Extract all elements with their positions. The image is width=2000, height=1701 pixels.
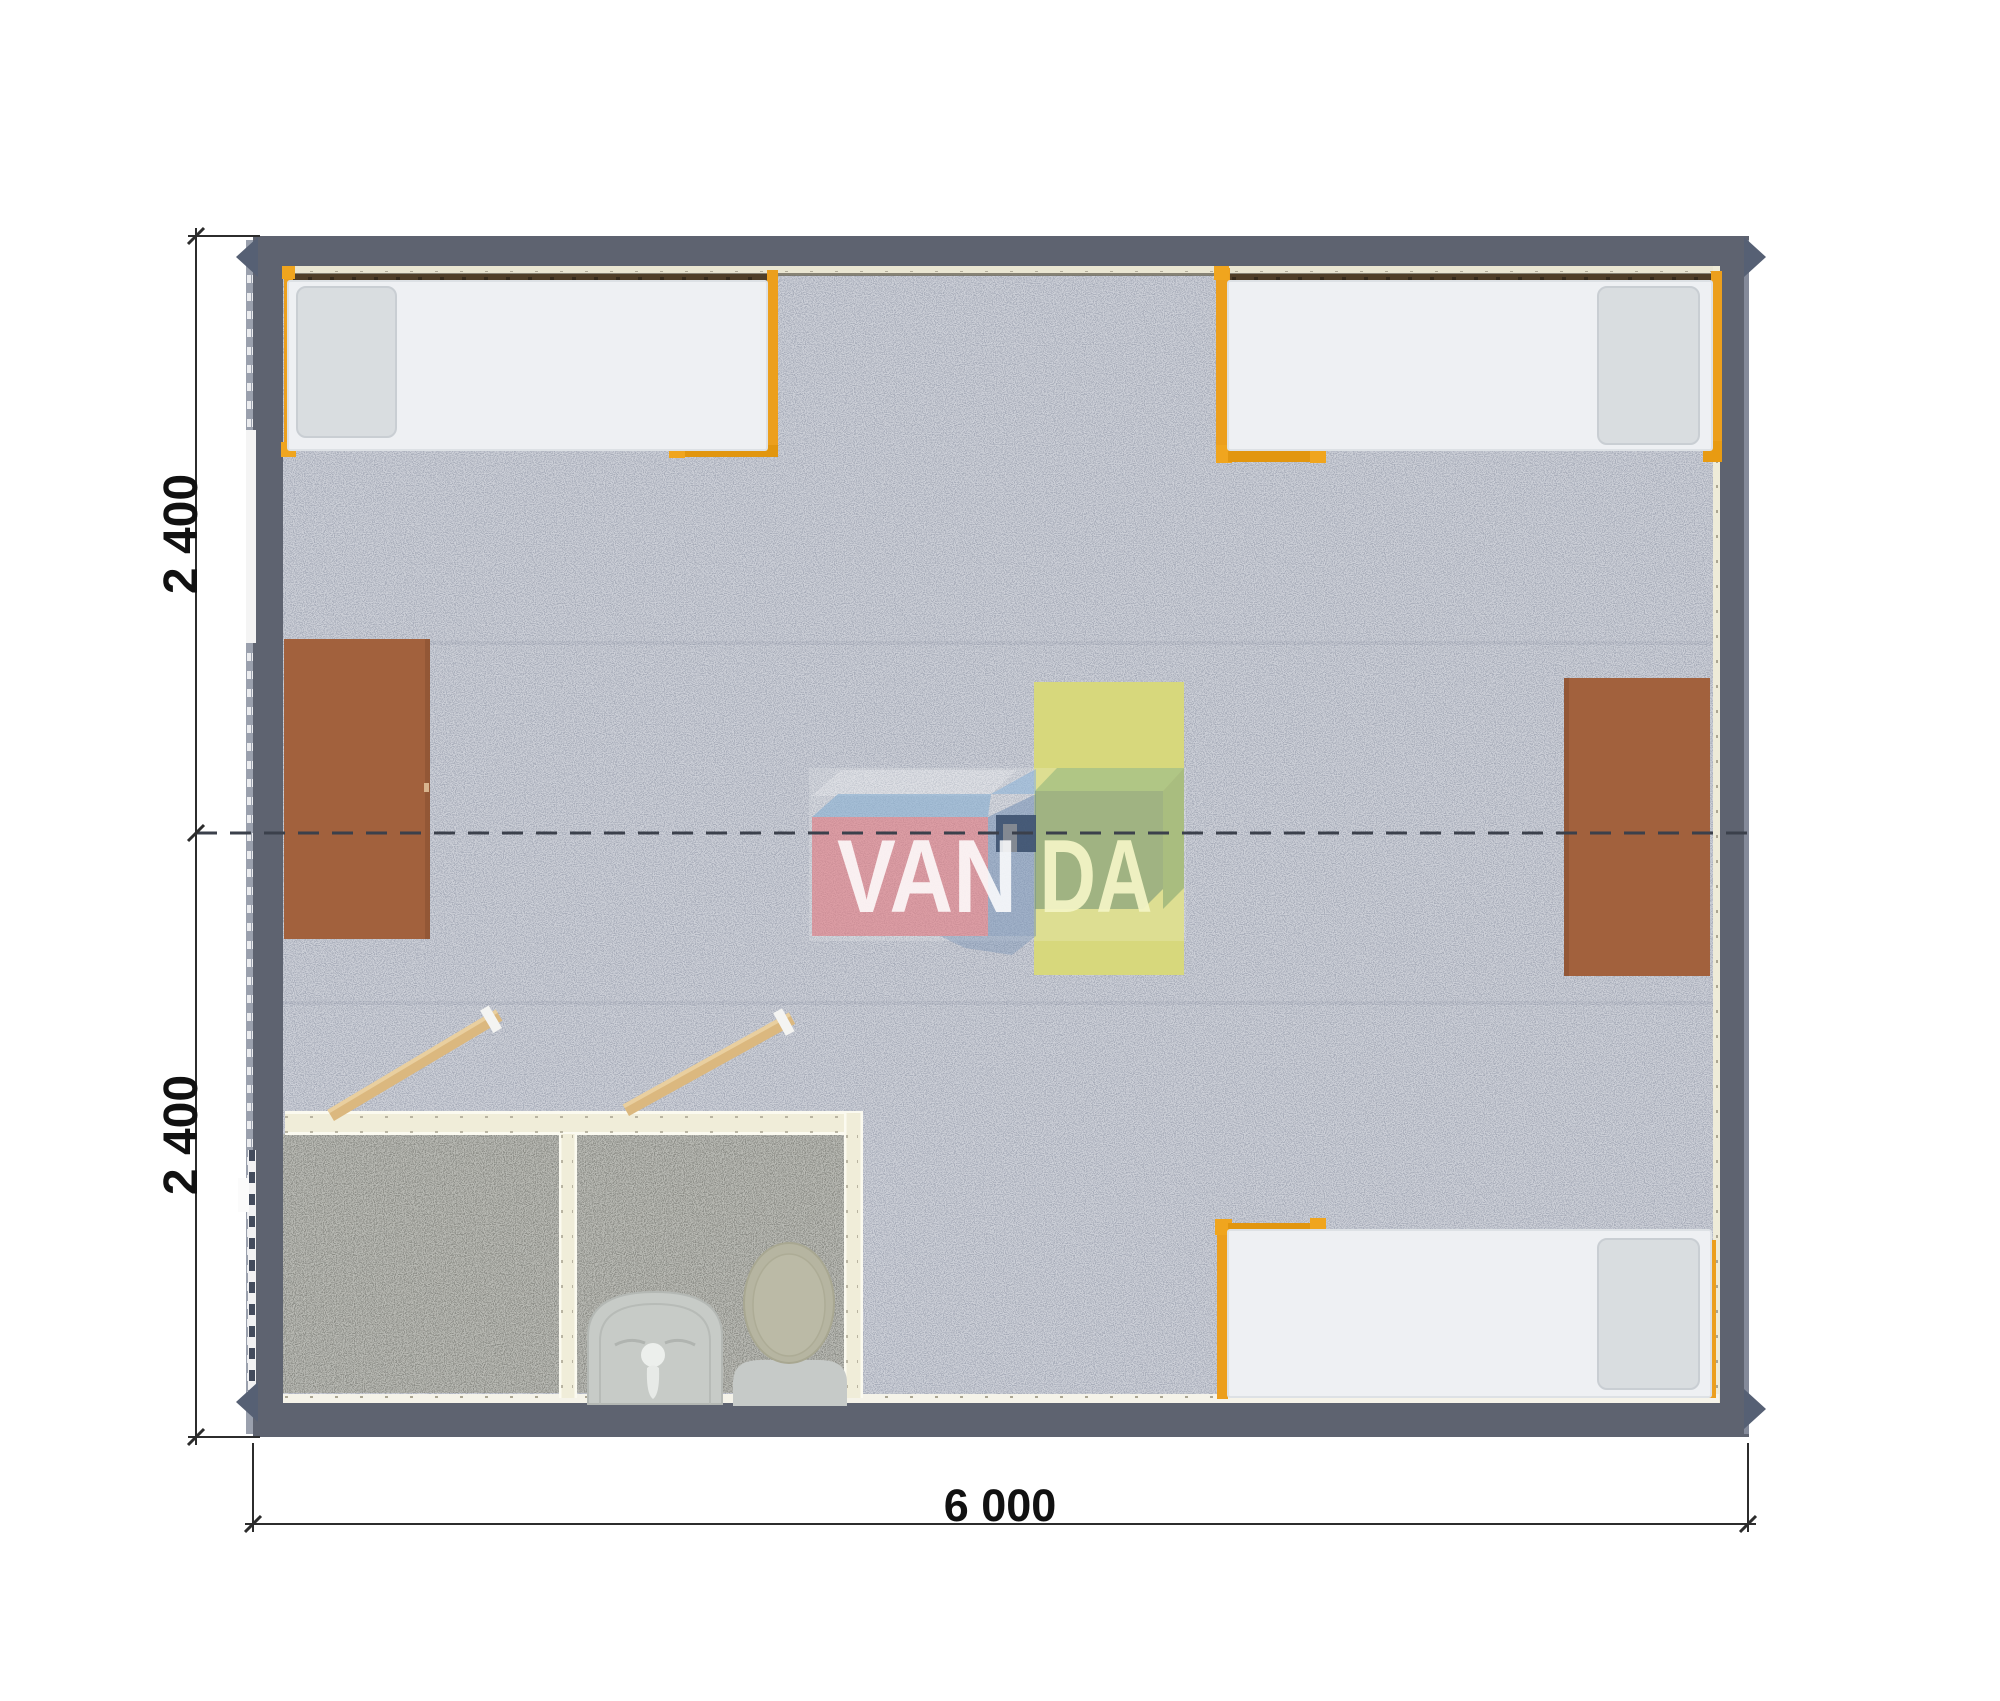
- svg-text:6 000: 6 000: [944, 1480, 1057, 1531]
- svg-text:2 400: 2 400: [155, 474, 208, 594]
- svg-text:VAN: VAN: [837, 819, 1017, 935]
- svg-text:DA: DA: [1040, 819, 1153, 935]
- svg-text:2 400: 2 400: [155, 1075, 208, 1195]
